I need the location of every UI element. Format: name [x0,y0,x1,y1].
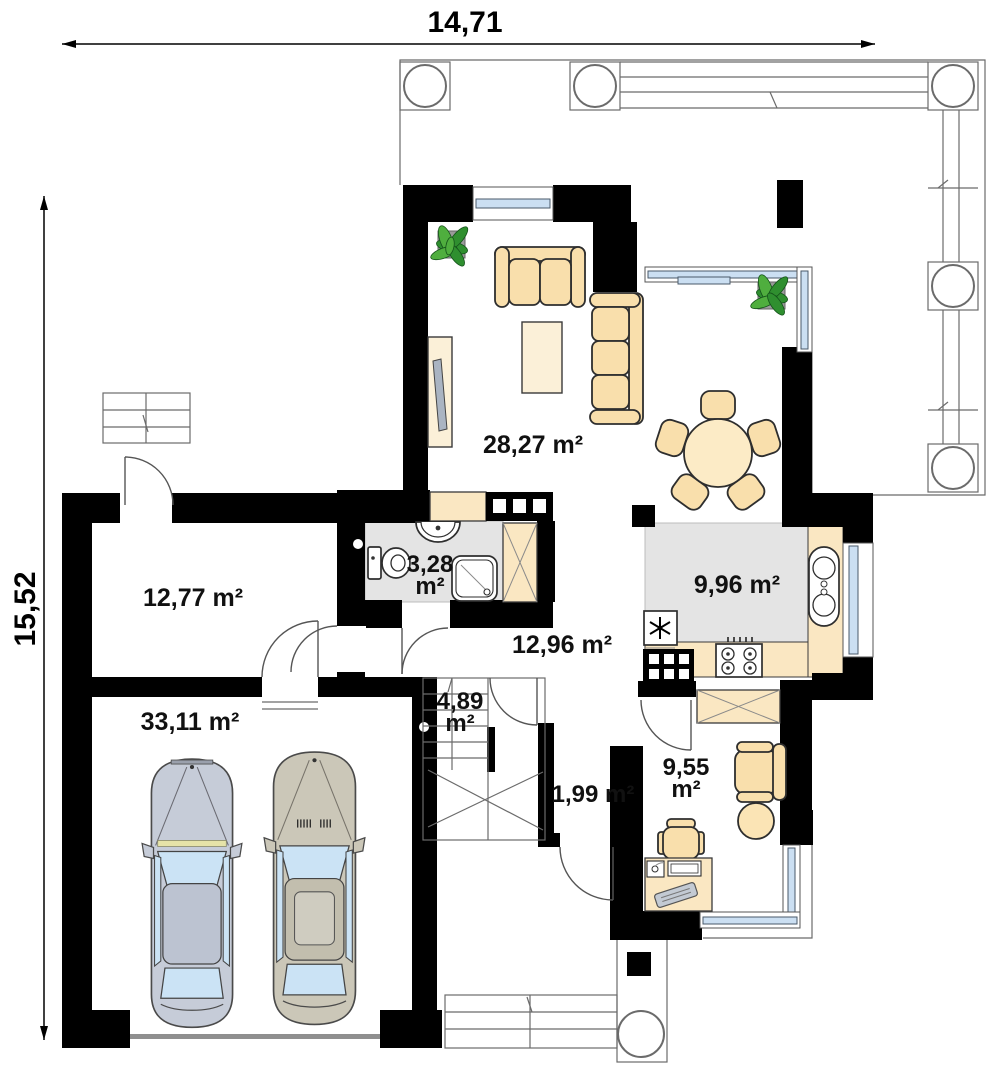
car-left [142,759,242,1027]
chimney-pillar [777,180,803,228]
floor-plan: 14,71 15,52 28,27 m² 12,77 m² 3,28 m² 9,… [0,0,998,1080]
terrace-column [400,62,450,110]
porch-steps-bottom [445,995,617,1048]
dimension-width-label: 14,71 [395,6,535,40]
desk [645,858,712,911]
terrace-column [928,62,978,110]
living-room-window [473,187,553,220]
dining-table [684,419,752,487]
shelf-unit [486,492,553,521]
office-corner-window [700,845,800,928]
sofa-two-seat [495,247,585,307]
hinge-dot [353,539,363,549]
dining-set [653,391,782,513]
dimension-height-label: 15,52 [9,559,43,659]
dining-chair [701,391,735,419]
terrace-column [928,444,978,492]
desk-chair [658,819,704,859]
garage-door [130,1034,380,1039]
dimension-arrow-top [62,40,875,48]
potted-plant [429,224,471,269]
porch-column-strip [617,938,667,1062]
sunroof [295,892,335,945]
kitchen-window [843,543,873,657]
bathroom-area-label: 3,28 m² [380,554,480,598]
floor-plan-drawing [0,0,998,1080]
side-table [738,803,774,839]
living-room-area-label: 28,27 m² [433,432,633,458]
wardrobe [503,523,537,602]
wardrobe [697,690,780,723]
office-area-label: 9,55 m² [636,757,736,801]
kitchen-area-label: 9,96 m² [637,572,837,598]
entry-steps-left [103,393,190,443]
tv-stand [428,337,452,447]
sofa-three-seat [590,293,643,424]
snowflake-icon [658,626,663,631]
coffee-table [522,322,562,393]
hall-area-label: 12,96 m² [462,632,662,658]
room-left-area-label: 12,77 m² [93,585,293,611]
wall-niche [430,492,486,521]
door-gap [336,626,366,672]
terrace-column [570,62,620,110]
garage-area-label: 33,11 m² [90,709,290,735]
staircase-area-label: 4,89 m² [410,691,510,735]
terrace-column [928,262,978,310]
mouse [652,866,658,872]
car-right [264,752,365,1024]
door-gap [262,676,318,698]
armchair [735,742,786,802]
